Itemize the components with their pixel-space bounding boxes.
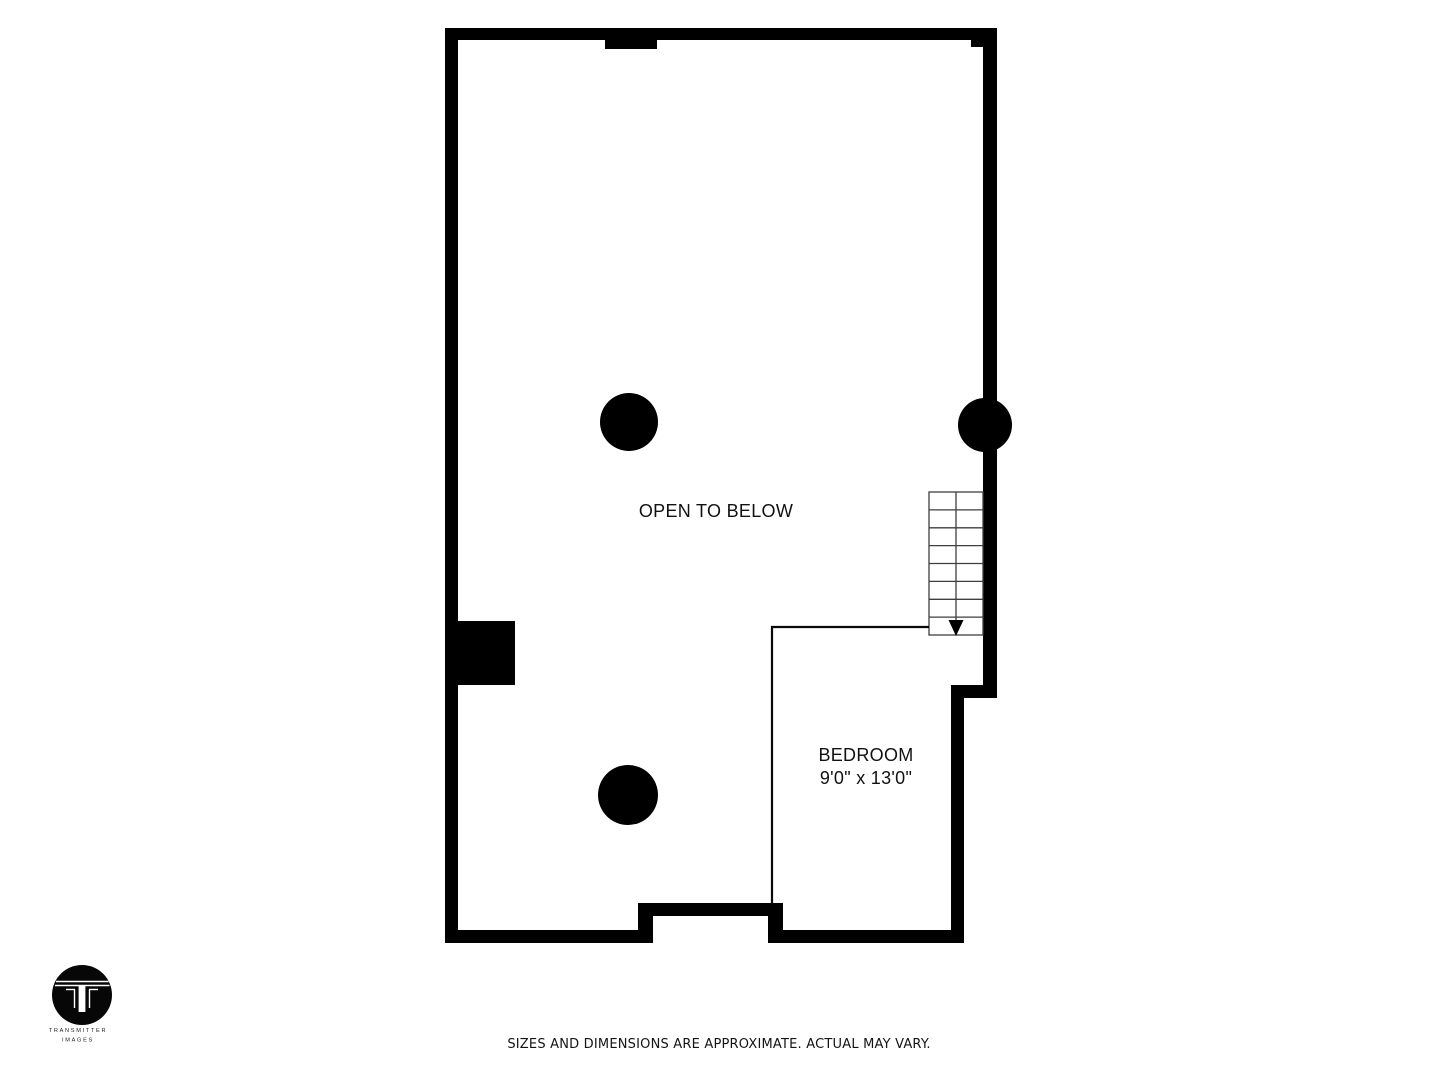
right-wall [983, 28, 997, 698]
logo-t-stem [79, 986, 86, 1013]
column-circle-lower [598, 765, 658, 825]
top-wall [445, 28, 997, 40]
page: OPEN TO BELOW BEDROOM 9'0" x 13'0" TRANS… [0, 0, 1440, 1080]
column-circle-upper [600, 393, 658, 451]
wall-column-circle [958, 398, 1012, 452]
exterior-walls [445, 28, 1012, 943]
floor-plan: OPEN TO BELOW BEDROOM 9'0" x 13'0" TRANS… [0, 0, 1440, 1080]
left-wall [445, 28, 458, 943]
right-wall-jog-vertical [951, 685, 964, 943]
bedroom-label: BEDROOM [818, 745, 913, 765]
masonry-block [456, 621, 515, 685]
disclaimer-text: SIZES AND DIMENSIONS ARE APPROXIMATE. AC… [507, 1037, 930, 1052]
top-right-corner-step [971, 38, 983, 47]
bedroom-partition-walls [771, 626, 929, 904]
entry-recess-top-wall [638, 903, 783, 916]
open-to-below-label: OPEN TO BELOW [639, 501, 793, 521]
bedroom-dimensions-label: 9'0" x 13'0" [820, 768, 912, 788]
staircase [929, 492, 983, 635]
top-wall-tab [605, 39, 657, 49]
logo-text-transmitter: TRANSMITTER [49, 1028, 107, 1034]
transmitter-logo: TRANSMITTER IMAGES [49, 965, 112, 1044]
logo-text-images: IMAGES [62, 1038, 94, 1044]
bottom-wall-left [445, 930, 653, 943]
bottom-wall-bedroom [768, 930, 964, 943]
